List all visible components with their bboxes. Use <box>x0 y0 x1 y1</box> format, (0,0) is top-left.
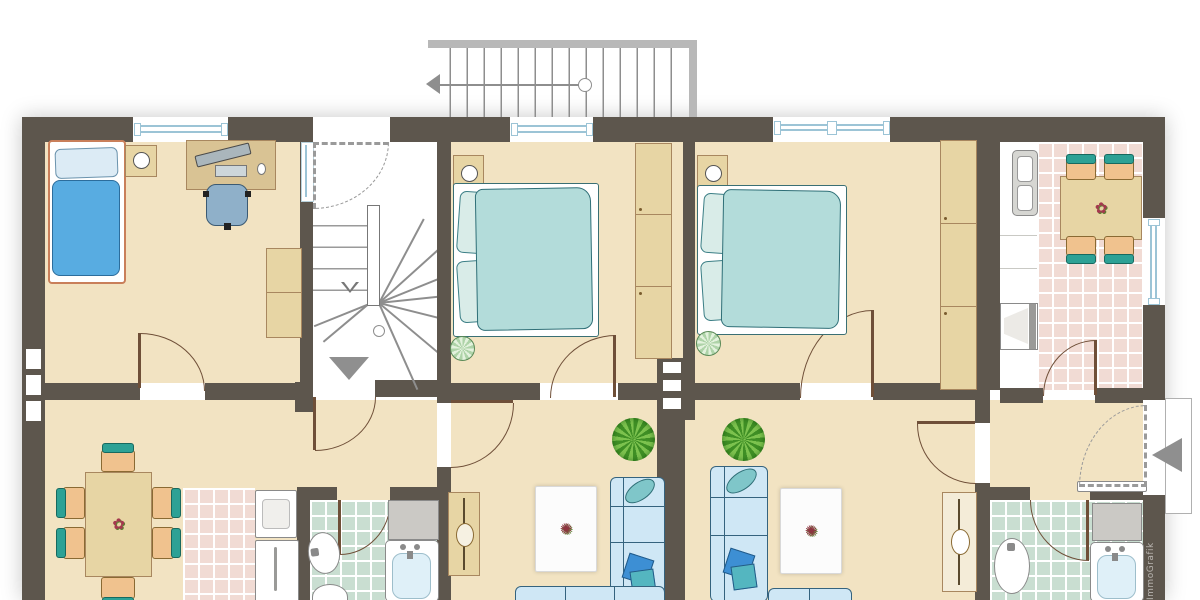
window-kitchen <box>1143 218 1163 305</box>
plant-living2 <box>722 418 765 461</box>
dining-chair <box>152 487 174 519</box>
wall-bathroom1-top <box>297 487 337 500</box>
sofa-living2 <box>710 466 768 600</box>
sideboard-living2 <box>942 492 977 592</box>
floor-plan: ✿ ✿ ✺ <box>0 0 1200 600</box>
dining-chair <box>152 527 174 559</box>
wall-kitchen-hall <box>1095 388 1143 403</box>
bathroom2-sink <box>994 538 1030 594</box>
wardrobe-bedroom3 <box>940 140 977 390</box>
mouse <box>257 163 266 175</box>
dining-chair <box>63 527 85 559</box>
double-bed-2 <box>697 185 847 335</box>
exterior-wall-top <box>890 117 1165 142</box>
wall-kitchen-hall <box>1000 388 1043 403</box>
rug-flower: ✺ <box>560 522 573 537</box>
shaft-opening <box>663 362 681 373</box>
wall-hall-living2 <box>975 390 990 423</box>
shaft-opening <box>663 398 681 409</box>
double-bed-1 <box>453 183 599 337</box>
wall-bathroom2-top <box>990 487 1030 500</box>
dining-chair <box>101 450 135 472</box>
plant-bedroom2 <box>450 336 475 361</box>
bathroom1-counter <box>388 500 439 540</box>
exterior-wall-top <box>593 117 773 142</box>
dining-chair <box>101 577 135 599</box>
kitchen-sink <box>1012 150 1038 216</box>
stair-railing <box>428 40 697 48</box>
plant-living1 <box>612 418 655 461</box>
exterior-staircase <box>428 40 697 127</box>
bathtub-1 <box>385 540 439 600</box>
sofa-living1-second <box>515 586 665 600</box>
exterior-wall-top <box>390 117 510 142</box>
wall-bedroom1-dining <box>205 383 300 400</box>
kitchenette-fridge <box>255 490 297 538</box>
plant-bedroom3 <box>696 331 721 356</box>
kitchen-chair <box>1104 236 1134 256</box>
bathtub-2 <box>1090 542 1144 600</box>
wall-bathroom1-top <box>390 487 437 500</box>
kitchen-chair <box>1066 160 1096 180</box>
interior-staircase <box>313 142 437 397</box>
rug-living2: ✺ <box>780 488 842 574</box>
nightstand <box>125 145 157 177</box>
stair-walk-start-circle <box>578 78 592 92</box>
entry-door-swing-arc <box>313 142 389 209</box>
dining-chair <box>63 487 85 519</box>
wall-bedroom2-living1 <box>451 383 540 400</box>
stairwell-entry-opening <box>313 117 390 142</box>
kitchenette-tile-floor <box>183 488 255 600</box>
glass-block-window <box>26 349 41 369</box>
rug-flower: ✺ <box>805 524 818 539</box>
stair-walk-circle <box>373 325 385 337</box>
wall-bedroom1-dining <box>45 383 140 400</box>
kitchen-chair <box>1104 160 1134 180</box>
exterior-wall-top <box>228 117 313 142</box>
stair-newel-divider <box>367 205 380 306</box>
stair-walk-line <box>436 84 586 86</box>
wall-bedroom2-bedroom3 <box>683 142 695 358</box>
wall-hall-living2 <box>975 483 990 600</box>
single-bed <box>48 140 126 284</box>
wall-bedroom3-kitchen <box>975 142 1000 390</box>
wardrobe-bedroom1 <box>266 248 302 338</box>
sideboard-living1 <box>448 492 480 576</box>
wall-bedroom2-living1 <box>618 383 657 400</box>
watermark: ImmoGrafik <box>1146 528 1162 600</box>
wall-bedroom3-living2 <box>695 383 800 400</box>
window-bedroom-1 <box>133 117 228 142</box>
monitor <box>194 142 251 167</box>
shaft-opening <box>663 380 681 391</box>
stair-down-arrow-icon <box>329 357 369 380</box>
glass-block-window <box>26 401 41 421</box>
rug-living1: ✺ <box>535 486 597 572</box>
kitchen-table: ✿ <box>1060 176 1142 240</box>
exterior-stair-arrow-icon <box>426 74 440 94</box>
exterior-wall-right <box>1143 117 1165 218</box>
kitchen-stove <box>1000 303 1038 350</box>
desk <box>186 140 276 190</box>
dining-table: ✿ <box>85 472 152 577</box>
keyboard <box>215 165 247 177</box>
window-bedroom-2 <box>510 117 593 142</box>
wall-stairwell-right <box>437 142 451 403</box>
sofa-living1 <box>610 477 665 600</box>
glass-block-window <box>26 375 41 395</box>
table-flowers: ✿ <box>112 517 125 532</box>
kitchen-chair <box>1066 236 1096 256</box>
stair-railing <box>689 40 697 127</box>
exterior-wall-right <box>1143 305 1165 400</box>
window-bedroom-3 <box>773 117 890 142</box>
washing-machine <box>1092 503 1142 541</box>
sofa-living2-second <box>768 588 852 600</box>
table-flowers: ✿ <box>1095 201 1108 216</box>
kitchenette-counter-sink <box>255 540 299 600</box>
office-chair <box>206 184 248 226</box>
wardrobe-bedroom2 <box>635 143 672 359</box>
entrance-arrow-icon <box>1152 438 1182 472</box>
